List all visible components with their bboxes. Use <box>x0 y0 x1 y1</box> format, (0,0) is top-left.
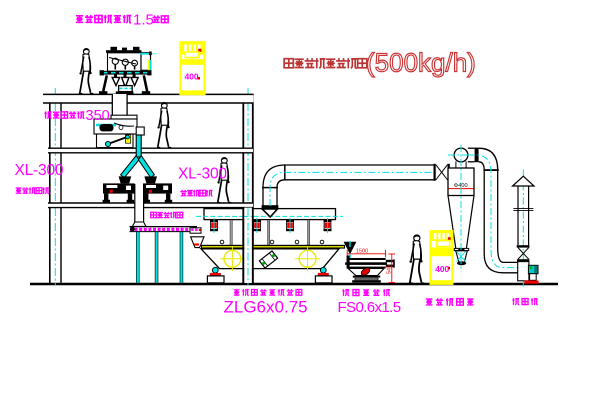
svg-text:1500: 1500 <box>356 249 368 255</box>
svg-text:400: 400 <box>185 71 199 81</box>
svg-text:XL-300: XL-300 <box>178 166 227 183</box>
svg-text:1.5: 1.5 <box>133 12 154 29</box>
svg-text:FS0.6x1.5: FS0.6x1.5 <box>338 299 401 316</box>
svg-text:(500kg/h): (500kg/h) <box>366 48 476 78</box>
svg-text:350: 350 <box>86 108 110 124</box>
svg-text:545: 545 <box>386 265 392 274</box>
svg-text:400: 400 <box>435 264 449 274</box>
svg-text:ZLG6x0.75: ZLG6x0.75 <box>224 298 308 317</box>
svg-text:XL-300: XL-300 <box>15 162 64 179</box>
